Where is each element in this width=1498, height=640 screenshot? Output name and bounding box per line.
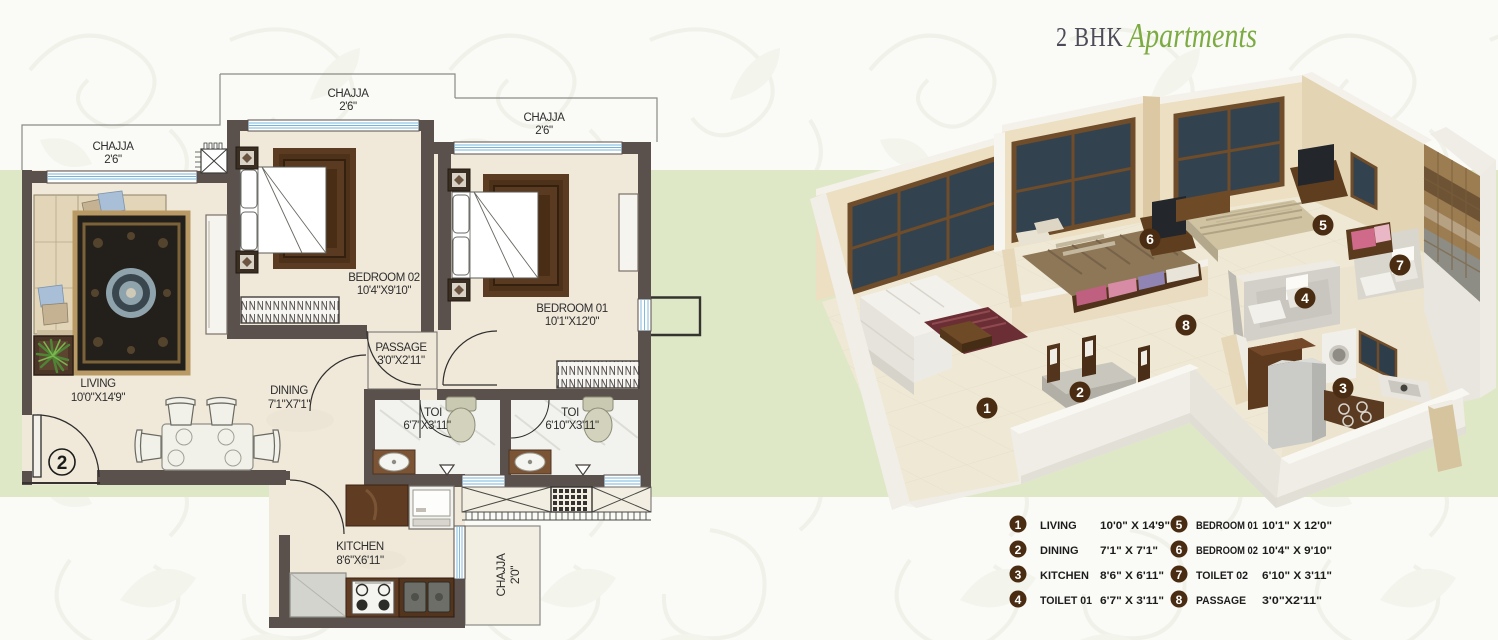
svg-text:3: 3 — [1339, 380, 1347, 396]
svg-text:BEDROOM 01: BEDROOM 01 — [1196, 520, 1258, 532]
svg-text:8'6" X 6'11": 8'6" X 6'11" — [1100, 570, 1164, 582]
svg-text:6'10" X 3'11": 6'10" X 3'11" — [1262, 570, 1332, 582]
svg-text:2: 2 — [1015, 543, 1022, 557]
svg-text:1: 1 — [1015, 518, 1022, 532]
svg-text:PASSAGE: PASSAGE — [1196, 595, 1246, 607]
svg-text:KITCHEN: KITCHEN — [336, 541, 384, 553]
svg-text:7: 7 — [1396, 257, 1404, 273]
svg-text:10'0" X 14'9": 10'0" X 14'9" — [1100, 520, 1170, 532]
svg-text:10'4"X9'10": 10'4"X9'10" — [357, 285, 412, 297]
svg-text:2'6": 2'6" — [535, 125, 553, 137]
svg-text:2: 2 — [1076, 384, 1084, 400]
svg-text:2'6": 2'6" — [339, 101, 357, 113]
svg-text:5: 5 — [1319, 217, 1327, 233]
svg-text:4: 4 — [1301, 290, 1309, 306]
svg-text:3: 3 — [1015, 568, 1022, 582]
svg-text:6'7"X3'11": 6'7"X3'11" — [403, 420, 451, 432]
svg-text:TOI: TOI — [424, 407, 442, 419]
svg-text:7'1"X7'1": 7'1"X7'1" — [268, 399, 311, 411]
svg-text:8: 8 — [1182, 317, 1190, 333]
svg-text:6: 6 — [1146, 231, 1154, 247]
svg-text:8'6"X6'11": 8'6"X6'11" — [336, 555, 384, 567]
svg-text:6'10"X3'11": 6'10"X3'11" — [545, 420, 599, 432]
svg-text:CHAJJA: CHAJJA — [523, 112, 565, 124]
svg-text:DINING: DINING — [270, 385, 308, 397]
svg-text:6'7" X 3'11": 6'7" X 3'11" — [1100, 595, 1164, 607]
svg-text:Apartments: Apartments — [1126, 16, 1257, 55]
svg-text:DINING: DINING — [1040, 545, 1079, 557]
svg-text:4: 4 — [1015, 593, 1022, 607]
svg-text:LIVING: LIVING — [80, 378, 116, 390]
svg-text:3'0"X2'11": 3'0"X2'11" — [1262, 595, 1322, 607]
svg-text:7'1" X 7'1": 7'1" X 7'1" — [1100, 545, 1158, 557]
svg-text:CHAJJA: CHAJJA — [327, 88, 369, 100]
svg-text:TOI: TOI — [561, 407, 579, 419]
svg-text:3'0"X2'11": 3'0"X2'11" — [377, 355, 425, 367]
svg-text:2'0": 2'0" — [508, 566, 522, 584]
svg-text:1: 1 — [983, 400, 991, 416]
svg-text:BEDROOM 02: BEDROOM 02 — [348, 272, 419, 284]
svg-text:2'6": 2'6" — [104, 154, 122, 166]
svg-text:KITCHEN: KITCHEN — [1040, 570, 1089, 582]
svg-text:6: 6 — [1176, 543, 1183, 557]
svg-text:8: 8 — [1176, 593, 1183, 607]
svg-text:LIVING: LIVING — [1040, 520, 1077, 532]
svg-text:10'4" X 9'10": 10'4" X 9'10" — [1262, 545, 1332, 557]
svg-text:10'1"X12'0": 10'1"X12'0" — [545, 316, 600, 328]
svg-text:5: 5 — [1176, 518, 1183, 532]
svg-text:PASSAGE: PASSAGE — [375, 342, 427, 354]
svg-text:TOILET 02: TOILET 02 — [1196, 570, 1248, 582]
svg-text:CHAJJA: CHAJJA — [494, 553, 508, 596]
svg-text:TOILET 01: TOILET 01 — [1040, 595, 1092, 607]
svg-text:BEDROOM 02: BEDROOM 02 — [1196, 545, 1258, 557]
svg-text:2: 2 — [57, 453, 68, 474]
svg-text:7: 7 — [1176, 568, 1183, 582]
svg-text:2 BHK: 2 BHK — [1056, 23, 1123, 53]
svg-text:10'1" X 12'0": 10'1" X 12'0" — [1262, 520, 1332, 532]
svg-text:10'0"X14'9": 10'0"X14'9" — [71, 392, 126, 404]
svg-text:BEDROOM 01: BEDROOM 01 — [536, 303, 607, 315]
svg-text:CHAJJA: CHAJJA — [92, 141, 134, 153]
